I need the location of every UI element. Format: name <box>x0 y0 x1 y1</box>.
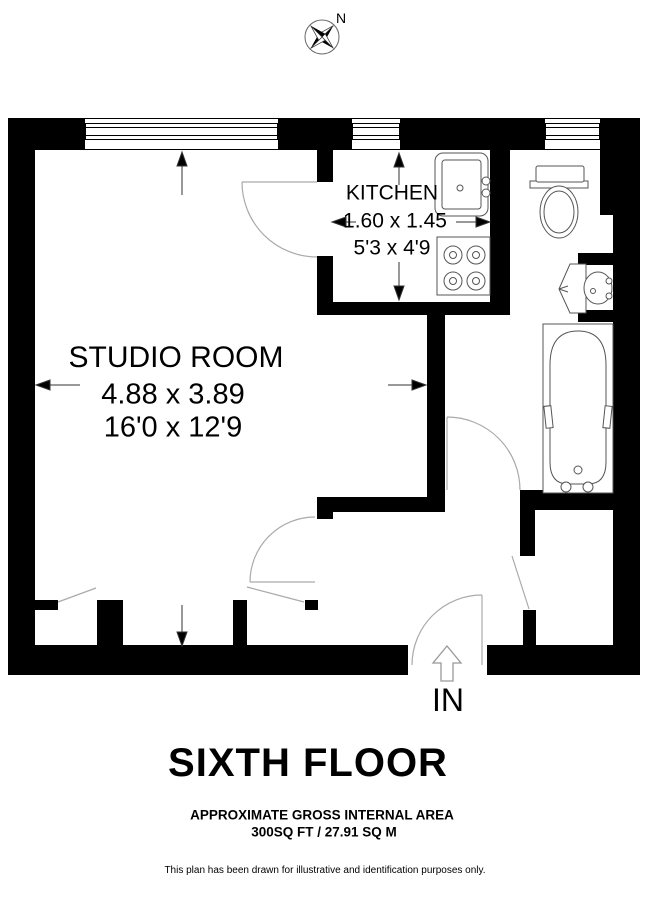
area-value: 300SQ FT / 27.91 SQ M <box>251 825 397 839</box>
closet1-door <box>58 588 96 602</box>
toilet-icon <box>530 166 588 238</box>
basin-icon <box>559 264 612 313</box>
sink-icon <box>435 153 490 216</box>
disclaimer-text: This plan has been drawn for illustrativ… <box>164 866 485 876</box>
kitchen-door <box>242 182 317 257</box>
kitchen-dim-metric: 1.60 x 1.45 <box>343 211 447 232</box>
cupboard-door <box>512 556 529 609</box>
studio-room-label: STUDIO ROOM <box>69 343 284 373</box>
area-heading: APPROXIMATE GROSS INTERNAL AREA <box>190 808 454 822</box>
floorplan-page: N KITCHEN 1.60 x 1.45 5'3 x 4'9 STUDIO R… <box>0 0 648 900</box>
kitchen-room-label: KITCHEN <box>346 183 438 204</box>
studio-door <box>250 517 315 582</box>
studio-dim-metric: 4.88 x 3.89 <box>101 381 245 410</box>
bathtub-icon <box>543 324 613 493</box>
entry-arrow-icon <box>433 646 461 681</box>
closet2-door <box>247 587 304 602</box>
compass-icon <box>305 20 339 54</box>
compass-north-label: N <box>336 11 346 25</box>
studio-dim-imperial: 16'0 x 12'9 <box>104 414 242 443</box>
floor-title: SIXTH FLOOR <box>168 743 448 783</box>
bathroom-door <box>447 417 520 490</box>
hob-icon <box>437 237 490 295</box>
kitchen-dim-imperial: 5'3 x 4'9 <box>354 238 431 259</box>
entrance-label: IN <box>432 684 464 716</box>
